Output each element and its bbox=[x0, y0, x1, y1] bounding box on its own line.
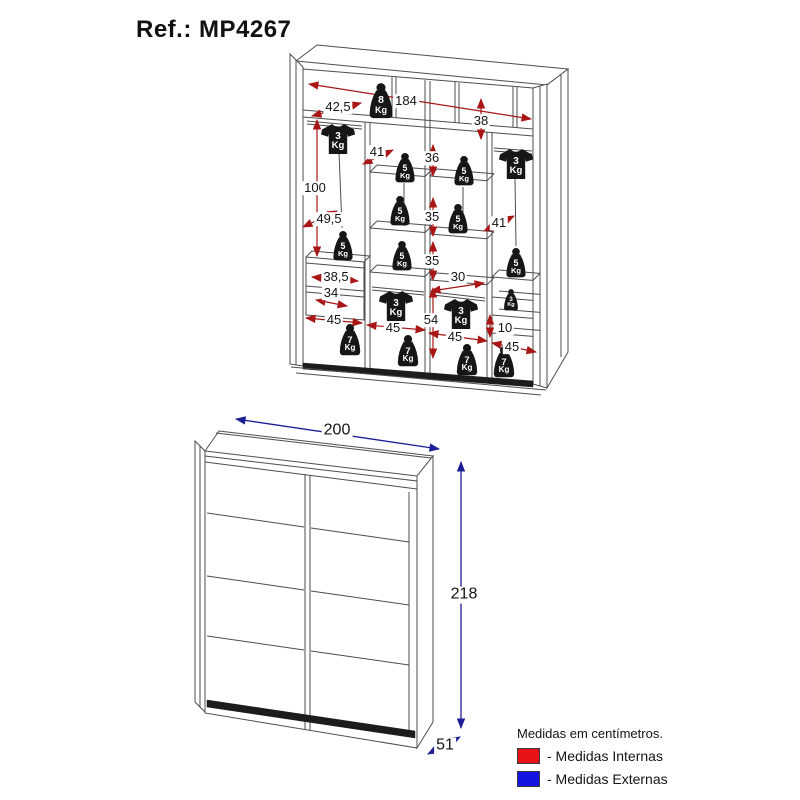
weight-load-icon: 5Kg bbox=[446, 204, 470, 234]
weight-load-icon: 5Kg bbox=[452, 156, 476, 186]
hanging-shirt-load-icon: 3Kg bbox=[499, 149, 533, 179]
dimension-label: 49,5 bbox=[314, 212, 343, 226]
weight-load-icon: 5Kg bbox=[388, 196, 412, 226]
hanging-shirt-load-icon: 3Kg bbox=[321, 124, 355, 154]
legend-note: Medidas em centímetros. bbox=[517, 726, 668, 741]
dimension-label: 36 bbox=[423, 151, 441, 165]
dimension-label: 34 bbox=[322, 286, 340, 300]
dimension-label: 38,5 bbox=[321, 270, 350, 284]
dimension-label: 218 bbox=[449, 587, 480, 604]
weight-load-icon: 7Kg bbox=[395, 335, 421, 367]
external-view-carcass bbox=[195, 431, 433, 748]
dimension-label: 41 bbox=[368, 145, 386, 159]
dimension-label: 35 bbox=[423, 254, 441, 268]
dimension-label: 41 bbox=[490, 216, 508, 230]
legend-row-internas: - Medidas Internas bbox=[517, 748, 668, 764]
dimension-label: 45 bbox=[325, 313, 343, 327]
weight-load-icon: 7Kg bbox=[454, 344, 480, 376]
legend-label: - Medidas Externas bbox=[547, 771, 668, 787]
weight-load-icon: 3Kg bbox=[502, 289, 519, 311]
external-measures-swatch-icon bbox=[517, 771, 540, 787]
dimension-label: 45 bbox=[446, 330, 464, 344]
hanging-shirt-load-icon: 3Kg bbox=[379, 291, 413, 321]
legend: Medidas em centímetros. - Medidas Intern… bbox=[517, 726, 668, 787]
weight-load-icon: 5Kg bbox=[504, 248, 528, 278]
dimension-label: 30 bbox=[449, 270, 467, 284]
dimension-label: 38 bbox=[472, 114, 490, 128]
weight-load-icon: 5Kg bbox=[390, 241, 414, 271]
dimension-label: 184 bbox=[393, 94, 419, 108]
weight-load-icon: 5Kg bbox=[393, 153, 417, 183]
internal-measures-swatch-icon bbox=[517, 748, 540, 764]
dimension-label: 54 bbox=[422, 313, 440, 327]
weight-load-icon: 8Kg bbox=[367, 83, 396, 119]
dimension-label: 200 bbox=[322, 423, 353, 440]
page: Ref.: MP4267 bbox=[0, 0, 800, 800]
dimension-label: 10 bbox=[496, 321, 514, 335]
hanging-shirt-load-icon: 3Kg bbox=[444, 299, 478, 329]
dimension-label: 51 bbox=[434, 738, 456, 755]
dimension-label: 100 bbox=[302, 181, 328, 195]
dimension-label: 45 bbox=[503, 340, 521, 354]
weight-load-icon: 5Kg bbox=[331, 231, 355, 261]
legend-row-externas: - Medidas Externas bbox=[517, 771, 668, 787]
dimension-label: 45 bbox=[384, 321, 402, 335]
dimension-label: 42,5 bbox=[323, 100, 352, 114]
weight-load-icon: 7Kg bbox=[337, 324, 363, 356]
wardrobe-diagram-linework bbox=[0, 0, 800, 800]
legend-label: - Medidas Internas bbox=[547, 748, 663, 764]
dimension-label: 35 bbox=[423, 210, 441, 224]
